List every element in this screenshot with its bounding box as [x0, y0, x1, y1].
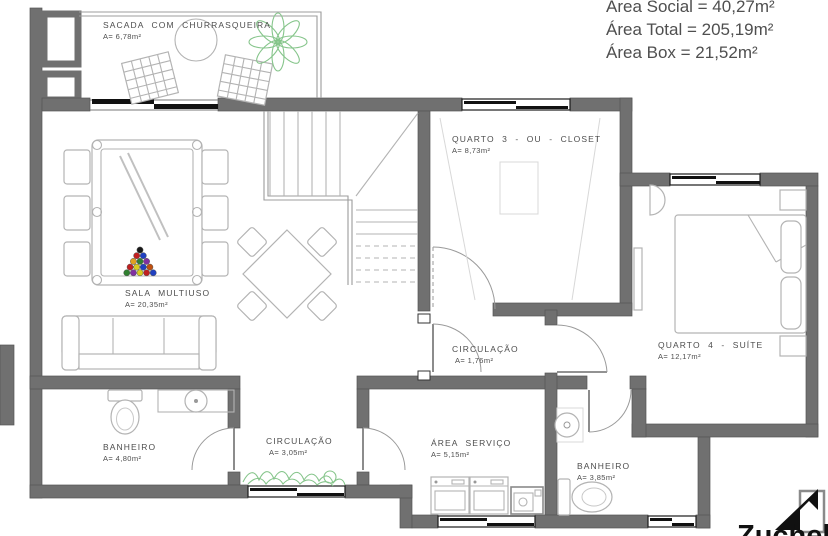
deck-chair: [122, 52, 179, 104]
churrasqueira-box-lower: [44, 74, 78, 100]
label-banheiro1: BANHEIRO: [103, 442, 156, 452]
area-quarto3: A= 8,73m²: [452, 146, 491, 155]
area-sacada: A= 6,78m²: [103, 32, 142, 41]
dining-set: [236, 226, 337, 321]
banheiro1-fixtures: [108, 390, 234, 434]
area-servico: A= 5,15m²: [431, 450, 470, 459]
area-banheiro1: A= 4,80m²: [103, 454, 142, 463]
window-servico: [438, 516, 535, 527]
pool-table: [92, 140, 202, 285]
sliding-door-sacada: [90, 99, 218, 110]
planter: [243, 471, 345, 486]
nightstand: [780, 190, 806, 210]
window-quarto4: [670, 174, 760, 185]
label-quarto3: QUARTO 3 - OU - CLOSET: [452, 134, 601, 144]
pillow: [781, 277, 801, 329]
pillow: [781, 221, 801, 273]
area-banheiro2: A= 3,85m²: [577, 473, 616, 482]
toilet-tank: [558, 479, 570, 515]
area-quarto4: A= 12,17m²: [658, 352, 701, 361]
washer: [470, 477, 508, 514]
label-banheiro2: BANHEIRO: [577, 461, 630, 471]
area-total-line: Área Total = 205,19m²: [606, 18, 775, 41]
label-sala: SALA MULTIUSO: [125, 288, 210, 298]
nightstand: [780, 336, 806, 356]
area-circulacao2: A= 3,05m²: [269, 448, 308, 457]
laundry-tank: [511, 487, 543, 514]
floor-plan-page: SACADA COM CHURRASQUEIRA A= 6,78m² SALA …: [0, 0, 828, 536]
area-summary: Área Social = 40,27m² Área Total = 205,1…: [606, 0, 775, 64]
sink: [555, 413, 579, 437]
washer: [431, 477, 469, 514]
area-sala: A= 20,35m²: [125, 300, 168, 309]
toilet-tank: [108, 390, 142, 401]
area-circulacao1: A= 1,76m²: [455, 356, 494, 365]
builder-logo: Zuchel: [737, 489, 828, 536]
label-circulacao1: CIRCULAÇÃO: [452, 344, 519, 354]
label-servico: ÁREA SERVIÇO: [431, 438, 511, 448]
servico-fixtures: [431, 477, 543, 514]
window-banheiro-suite: [648, 516, 696, 527]
label-sacada: SACADA COM CHURRASQUEIRA: [103, 20, 271, 30]
window-circulacao: [248, 486, 345, 497]
shelf: [634, 248, 642, 310]
window-quarto3: [462, 99, 570, 110]
sofa: [62, 316, 216, 370]
chair: [650, 185, 665, 215]
area-box-line: Área Box = 21,52m²: [606, 41, 775, 64]
toilet-bowl: [111, 400, 139, 434]
churrasqueira-box: [44, 14, 78, 64]
label-quarto4: QUARTO 4 - SUÍTE: [658, 340, 763, 350]
label-circulacao2: CIRCULAÇÃO: [266, 436, 333, 446]
area-social-line: Área Social = 40,27m²: [606, 0, 775, 18]
floor-plan-drawing: SACADA COM CHURRASQUEIRA A= 6,78m² SALA …: [0, 0, 828, 536]
logo-wordmark: Zuchel: [737, 520, 828, 536]
quarto4-furniture: [634, 185, 806, 356]
